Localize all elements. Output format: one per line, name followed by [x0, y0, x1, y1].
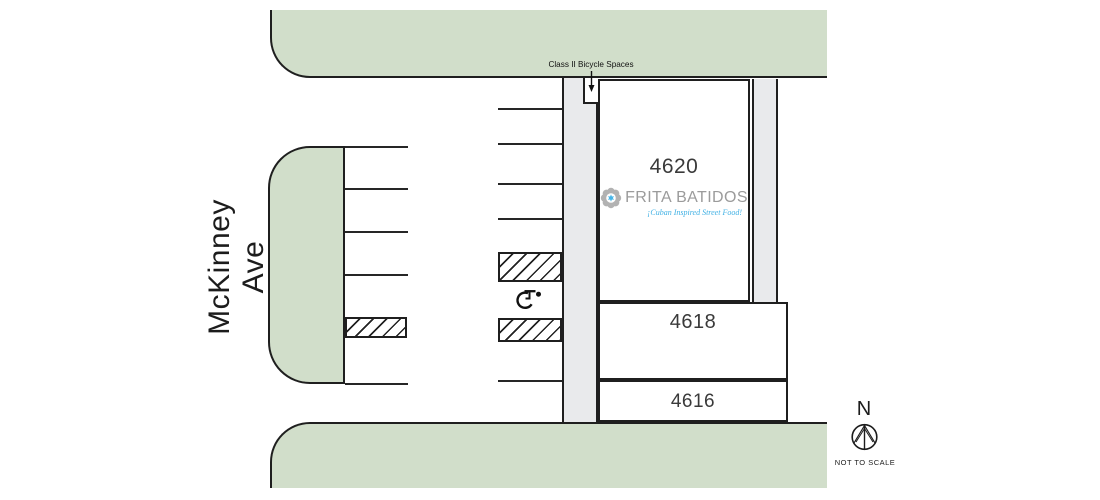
parking-line	[498, 380, 562, 382]
building-number: 4618	[600, 311, 786, 334]
bike-spaces-label: Class II Bicycle Spaces	[520, 60, 662, 69]
parking-line	[345, 188, 408, 190]
landscape-island	[268, 146, 345, 384]
parking-line	[345, 231, 408, 233]
logo-tagline: ¡Cuban Inspired Street Food!	[647, 208, 742, 217]
parking-line	[345, 146, 408, 148]
street-name-mckinney-ave: McKinney Ave	[203, 172, 241, 362]
north-label: N	[845, 398, 883, 421]
parking-line	[345, 274, 408, 276]
hatched-stall	[498, 318, 562, 342]
building-4616: 4616	[598, 380, 788, 422]
flower-icon	[600, 187, 622, 209]
street-band-bottom	[270, 422, 827, 488]
parking-line	[345, 383, 408, 385]
parking-line	[498, 183, 562, 185]
logo-wordmark: FRITA BATIDOS	[625, 189, 748, 207]
building-4618: 4618	[598, 302, 788, 380]
frita-batidos-logo: FRITA BATIDOS	[600, 187, 748, 209]
site-plan: McKinney Ave Class II Bicycle Spaces	[0, 0, 1100, 500]
not-to-scale-note: NOT TO SCALE	[822, 458, 908, 467]
building-number: 4616	[600, 391, 786, 413]
hatched-stall	[345, 317, 407, 338]
north-arrow-icon	[849, 421, 880, 457]
parking-line	[498, 143, 562, 145]
parking-line	[498, 108, 562, 110]
hatched-stall	[498, 252, 562, 282]
down-arrow-icon	[588, 71, 595, 97]
parking-line	[498, 218, 562, 220]
sidewalk-middle	[562, 78, 598, 422]
wheelchair-icon	[514, 287, 544, 315]
building-number: 4620	[600, 155, 748, 179]
sidewalk-right	[752, 79, 778, 302]
building-4620: 4620 FRITA BATIDOS ¡Cuban Inspired Stree…	[598, 79, 750, 302]
